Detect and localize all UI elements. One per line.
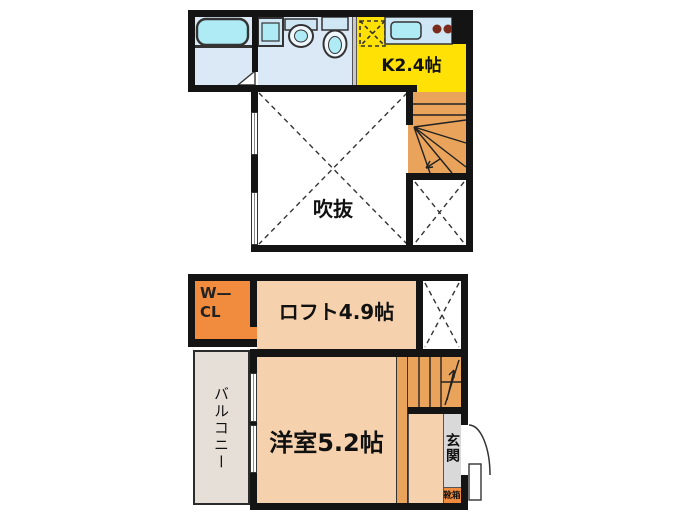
wall: [188, 10, 195, 92]
wall: [250, 349, 468, 357]
stove-burner: [433, 25, 442, 34]
bathtub: [197, 19, 248, 45]
wall: [188, 274, 468, 281]
upper-floor-plan: K2.4帖 吹抜: [188, 10, 473, 252]
room-label: 洋室5.2帖: [257, 424, 396, 456]
wcl-line1: W—: [200, 284, 248, 303]
balcony-window: [250, 373, 257, 422]
wcl-line2: CL: [200, 303, 248, 322]
wall: [188, 85, 417, 92]
entrance-door-gap: [461, 425, 468, 475]
washing-machine-pan: [258, 18, 283, 46]
stairs-arrow: [447, 370, 454, 400]
wall: [416, 274, 423, 349]
lower-floor-plan: W— CL ロフト4.9帖 洋室5.2帖 バルコニー 玄関 靴箱: [188, 274, 495, 510]
wall: [252, 10, 258, 72]
loft-label: ロフト4.9帖: [257, 296, 416, 324]
storage-x-mark: [415, 182, 464, 243]
void-window: [251, 112, 258, 155]
kitchen-counter: [385, 17, 453, 44]
shoebox-label: 靴箱: [443, 487, 461, 503]
wall: [408, 407, 468, 414]
wall: [251, 245, 473, 252]
kitchen-label: K2.4帖: [357, 48, 466, 78]
washbasin: [285, 19, 317, 47]
bath-door-swing: [238, 71, 255, 85]
kitchen-sink: [391, 22, 421, 39]
lower-stairs-marks: [419, 357, 461, 407]
walkin-closet-label: W— CL: [200, 284, 248, 328]
wall: [188, 10, 473, 17]
floorplan-canvas: K2.4帖 吹抜: [0, 0, 700, 525]
refrigerator-space: [360, 21, 385, 46]
balcony-label: バルコニー: [193, 354, 250, 502]
stairs-arrow: [426, 159, 440, 168]
upper-stairs-marks: [413, 104, 466, 173]
entrance-door-leaf: [469, 464, 481, 500]
wall: [452, 10, 473, 44]
wall: [406, 92, 413, 125]
wall: [250, 503, 468, 510]
toilet: [322, 17, 348, 58]
void-label: 吹抜: [258, 194, 408, 221]
wall: [406, 173, 473, 180]
bathtub-edge-line: [195, 45, 252, 48]
entrance-door: [469, 425, 490, 500]
storage-x-mark: [425, 283, 459, 347]
wall: [188, 274, 195, 347]
wall: [466, 10, 473, 252]
balcony-window: [250, 425, 257, 473]
wall: [250, 274, 257, 327]
entrance-label: 玄関: [443, 417, 461, 479]
void-window: [251, 192, 258, 245]
wall: [188, 339, 257, 347]
